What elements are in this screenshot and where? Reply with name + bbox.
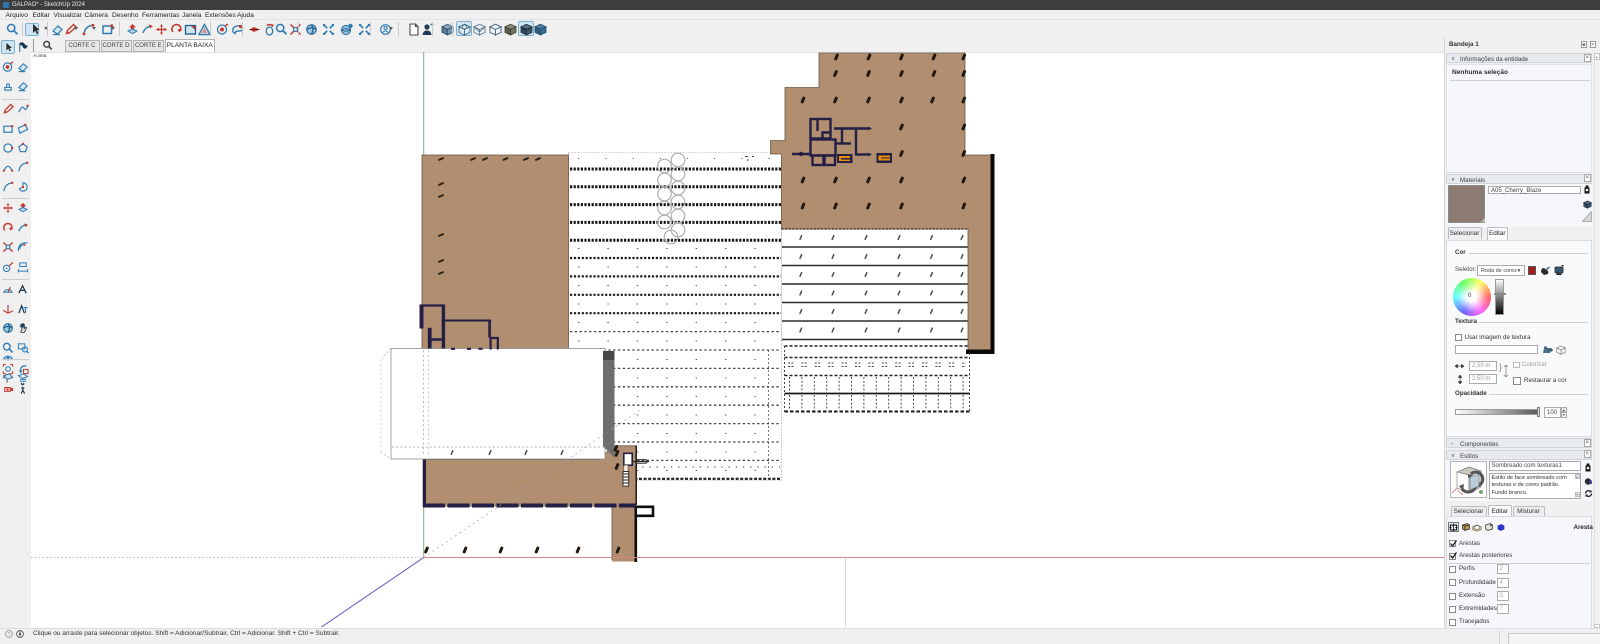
svg-text:?: ? xyxy=(8,632,11,638)
